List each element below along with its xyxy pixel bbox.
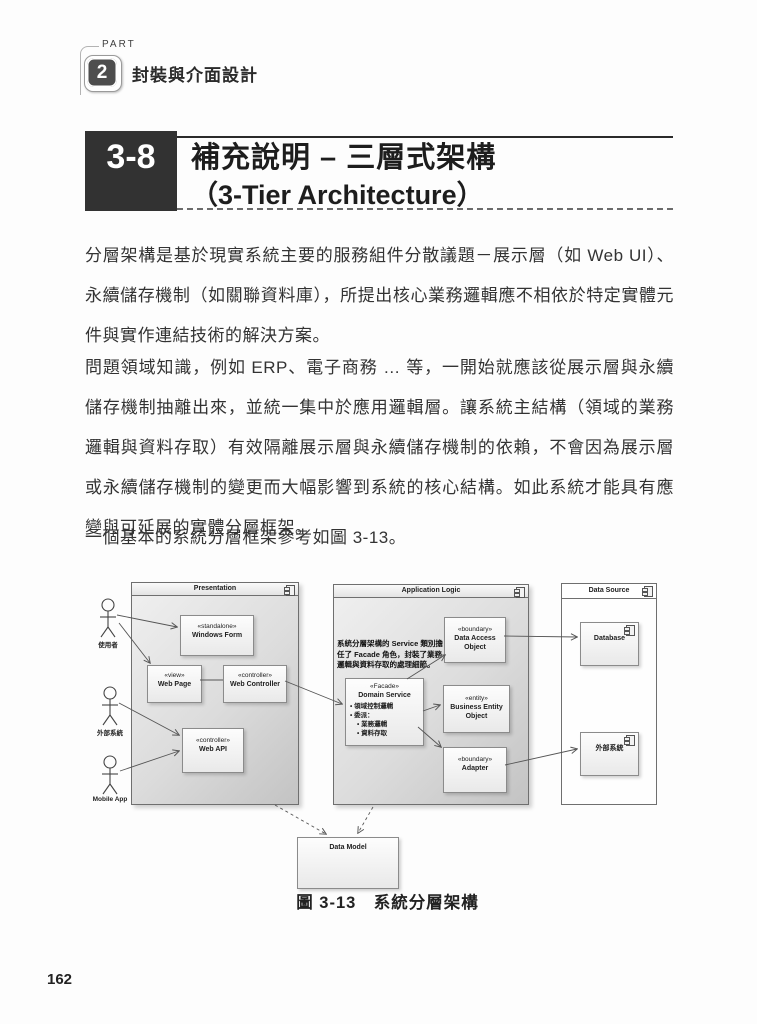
section-rule-dashed [177,208,673,210]
node-domain-service: «Facade» Domain Service • 領域控制邏輯 • 委派： •… [345,678,424,746]
section-number-box: 3-8 [85,131,177,211]
section-title: 補充說明 – 三層式架構 （3-Tier Architecture） [191,140,671,214]
part-title: 封裝與介面設計 [132,61,258,86]
stereotype: «standalone» [181,623,253,631]
actor-label-mobile-app: Mobile App [80,796,140,803]
figure-caption: 圖 3-13 系統分層架構 [85,889,690,913]
section-number: 3-8 [85,131,177,183]
node-name: Data Access Object [445,634,505,652]
node-name: Windows Form [181,631,253,640]
component-icon [644,586,653,597]
actor-external-system-icon [102,687,118,725]
stereotype: «boundary» [444,756,506,764]
node-web-controller: «controller» Web Controller [223,665,287,703]
node-business-entity-object: «entity» Business Entity Object [443,685,510,733]
node-name: Web API [183,745,243,754]
node-web-api: «controller» Web API [182,728,244,773]
actor-label-external-system: 外部系統 [80,727,140,737]
node-name: Domain Service [346,691,423,700]
part-number-badge: 2 [87,58,117,87]
actor-mobile-app-icon [102,756,118,794]
paragraph-3: 一個基本的系統分層框架參考如圖 3-13。 [85,518,674,558]
stereotype: «boundary» [445,626,505,634]
figure-3-13-diagram: Presentation Application Logic Data Sour… [85,575,690,890]
stereotype: «controller» [183,737,243,745]
section-rule-top [177,136,673,138]
package-presentation-header: Presentation [132,583,298,596]
component-icon [626,625,635,636]
node-name: Web Controller [224,680,286,689]
bullet-item: • 資料存取 [350,729,423,738]
package-application-logic-header: Application Logic [334,585,528,598]
page-number: 162 [47,971,72,988]
node-name: Data Model [298,843,398,852]
stereotype: «Facade» [346,683,423,691]
node-windows-form: «standalone» Windows Form [180,615,254,656]
stereotype: «view» [148,672,201,680]
node-database: Database [580,622,639,666]
section-title-line1: 補充說明 – 三層式架構 [191,140,671,177]
stereotype: «controller» [224,672,286,680]
bullet-item: • 委派： [350,711,423,720]
stereotype: «entity» [444,695,509,703]
component-icon [516,587,525,598]
bullet-item: • 領域控制邏輯 [350,702,423,711]
node-data-model: Data Model [297,837,399,889]
node-data-access-object: «boundary» Data Access Object [444,617,506,663]
node-web-page: «view» Web Page [147,665,202,703]
node-adapter: «boundary» Adapter [443,747,507,793]
actor-user-icon [100,599,116,637]
node-external-system: 外部系統 [580,732,639,776]
component-icon [286,585,295,596]
node-name: Web Page [148,680,201,689]
actor-label-user: 使用者 [78,639,138,649]
component-icon [626,735,635,746]
domain-service-bullets: • 領域控制邏輯 • 委派： • 業務邏輯 • 資料存取 [346,700,423,738]
part-label: PART [99,39,139,50]
node-name: Business Entity Object [444,703,509,721]
paragraph-1: 分層架構是基於現實系統主要的服務組件分散議題－展示層（如 Web UI）、永續儲… [85,236,674,356]
diagram-note: 系統分層架構的 Service 類別擔任了 Facade 角色，封裝了業務邏輯與… [337,639,449,671]
bullet-item: • 業務邏輯 [350,720,423,729]
node-name: Adapter [444,764,506,773]
